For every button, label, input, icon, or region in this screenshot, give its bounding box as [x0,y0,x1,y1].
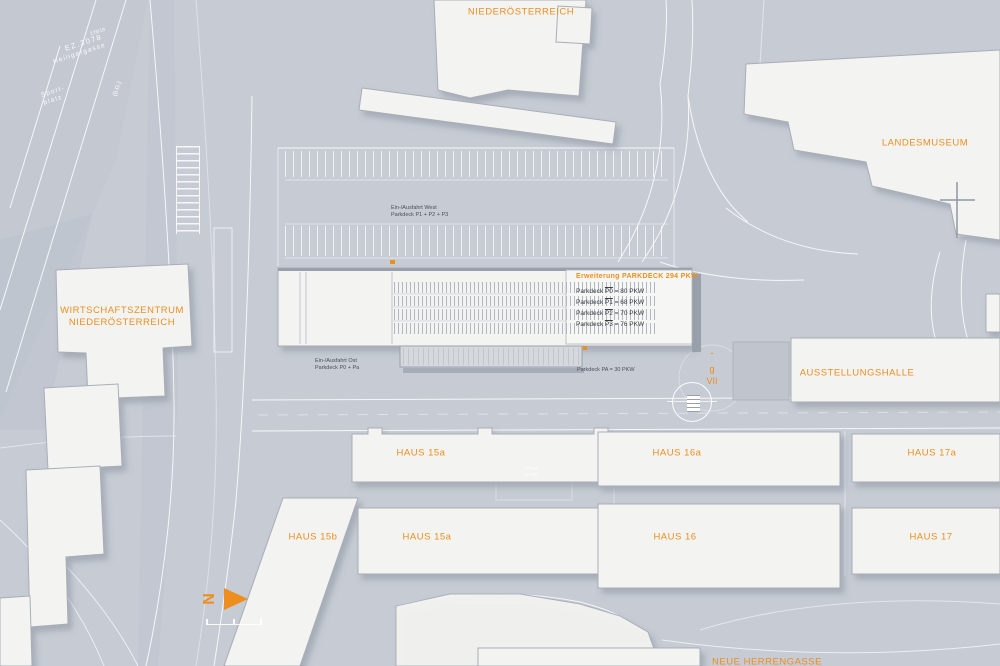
building-haus-15a-sued [358,508,622,574]
label-haus-15b: HAUS 15b [289,532,338,543]
annex-stalls [403,348,579,365]
building-wz-sued3 [0,596,32,666]
building-laenge-riegel [359,88,616,144]
parkdeck-row-p2: Parkdeck P2 = 70 PKW [576,310,644,317]
label-einfahrt-west: Ein-/Ausfahrt West Parkdeck P1 + P2 + P3 [391,205,448,219]
label-landesmuseum: LANDESMUSEUM [882,138,968,149]
label-niederoesterreich: NIEDERÖSTERREICH [468,7,574,18]
label-haus-17a: HAUS 17a [908,448,957,459]
building-sued-mitte [478,648,700,666]
building-haus-16a [598,432,840,486]
parkdeck-row-p0: Parkdeck P0 = 80 PKW [576,288,644,295]
label-court-parcel: 2776/4 42.846 [524,466,538,478]
north-letter: N [201,593,219,605]
parkdeck-row-p3: Parkdeck P3 = 76 PKW [576,321,644,328]
label-einfahrt-ost: Ein-/Ausfahrt Ost Parkdeck P0 + Pa [315,358,359,372]
parking-stalls-north-row1 [285,151,669,177]
building-wz-sued2 [26,466,104,627]
north-arrow-icon [224,588,248,610]
round-symbol-icon [672,382,712,422]
symbol-box-icon [685,392,702,415]
parkdeck-panel-title: Erweiterung PARKDECK 294 PKW [576,273,698,280]
building-wz-sued1 [44,384,122,470]
label-haus-17: HAUS 17 [909,532,952,543]
label-wz-line1: WIRTSCHAFTSZENTRUM [60,305,184,317]
label-haus-16: HAUS 16 [653,532,696,543]
label-wz-line2: NIEDERÖSTERREICH [60,317,184,329]
building-right-edge [986,294,1000,332]
stairs-ramp [176,146,200,234]
label-haus-16a: HAUS 16a [653,448,702,459]
orange-marker-west [390,260,395,264]
scale-bar [206,618,262,625]
label-parkdeck-pa: Parkdeck PA = 30 PKW [577,367,635,374]
level-dash: - [711,348,714,358]
label-haus-15a-sued: HAUS 15a [403,532,452,543]
orange-marker-ost [583,346,587,350]
site-plan: NIEDERÖSTERREICH LANDESMUSEUM WIRTSCHAFT… [0,0,1000,666]
building-haus-15b [224,498,358,666]
building-haus-16 [598,504,840,588]
parking-stalls-north-row2 [285,226,669,256]
level-vii: VII [706,376,717,386]
label-ausstellungshalle: AUSSTELLUNGSHALLE [800,368,915,379]
building-haus-15a-nord [352,428,608,482]
label-haus-15a-nord: HAUS 15a [397,448,446,459]
parkdeck-row-p1: Parkdeck P1 = 68 PKW [576,299,644,306]
level-g: g [709,364,714,374]
label-wirtschaftszentrum: WIRTSCHAFTSZENTRUM NIEDERÖSTERREICH [60,305,184,329]
label-neue-herrengasse: NEUE HERRENGASSE [712,657,822,666]
